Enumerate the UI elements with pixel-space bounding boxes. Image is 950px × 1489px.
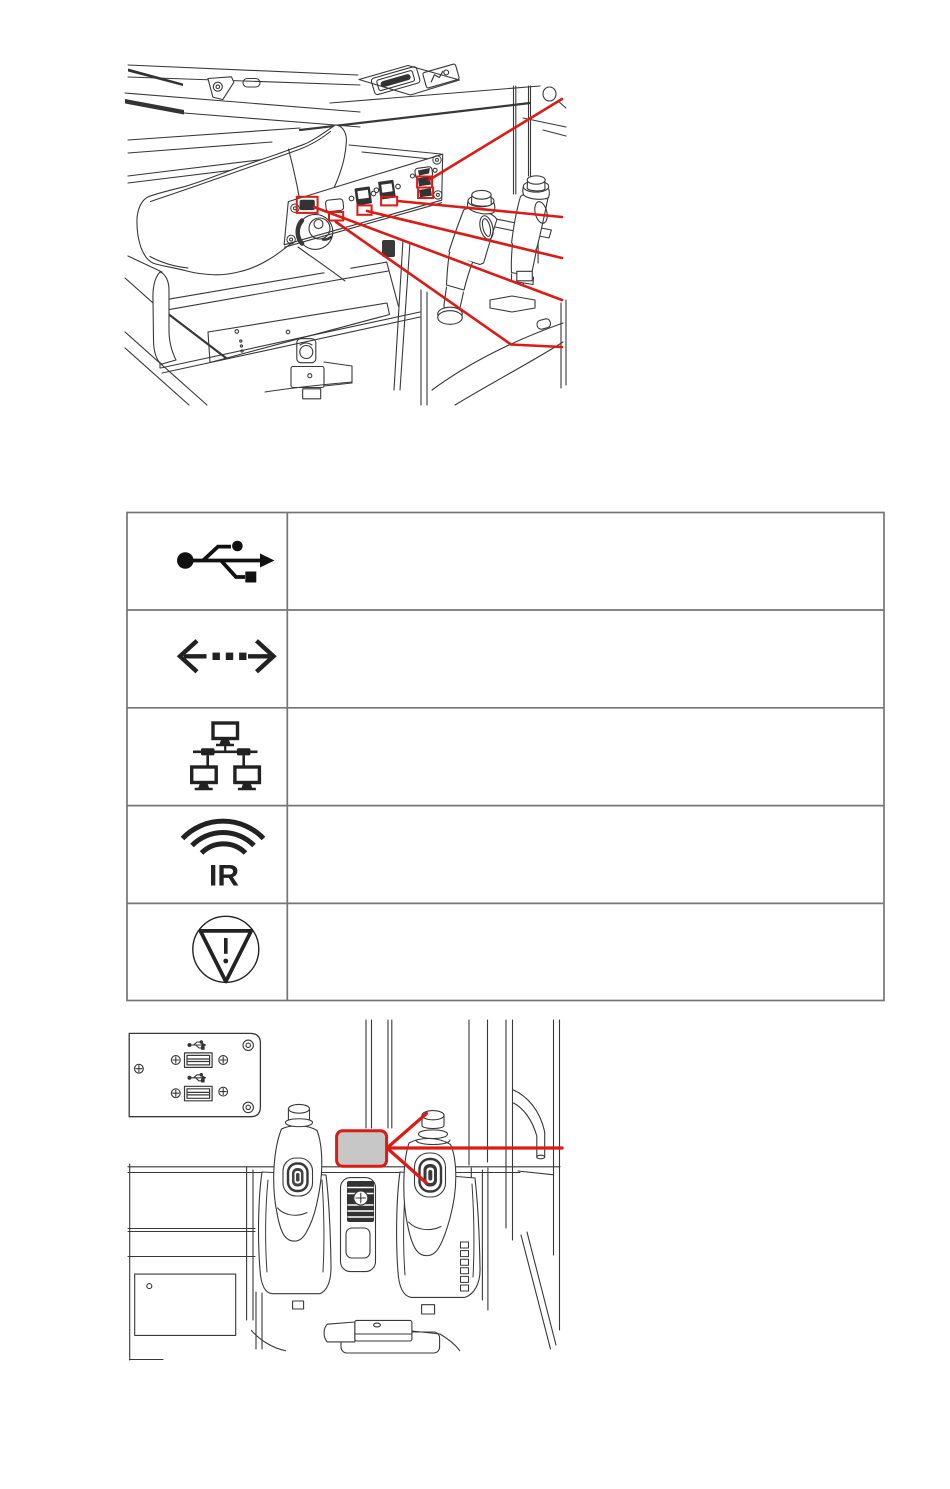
svg-text:IR: IR — [209, 860, 239, 893]
